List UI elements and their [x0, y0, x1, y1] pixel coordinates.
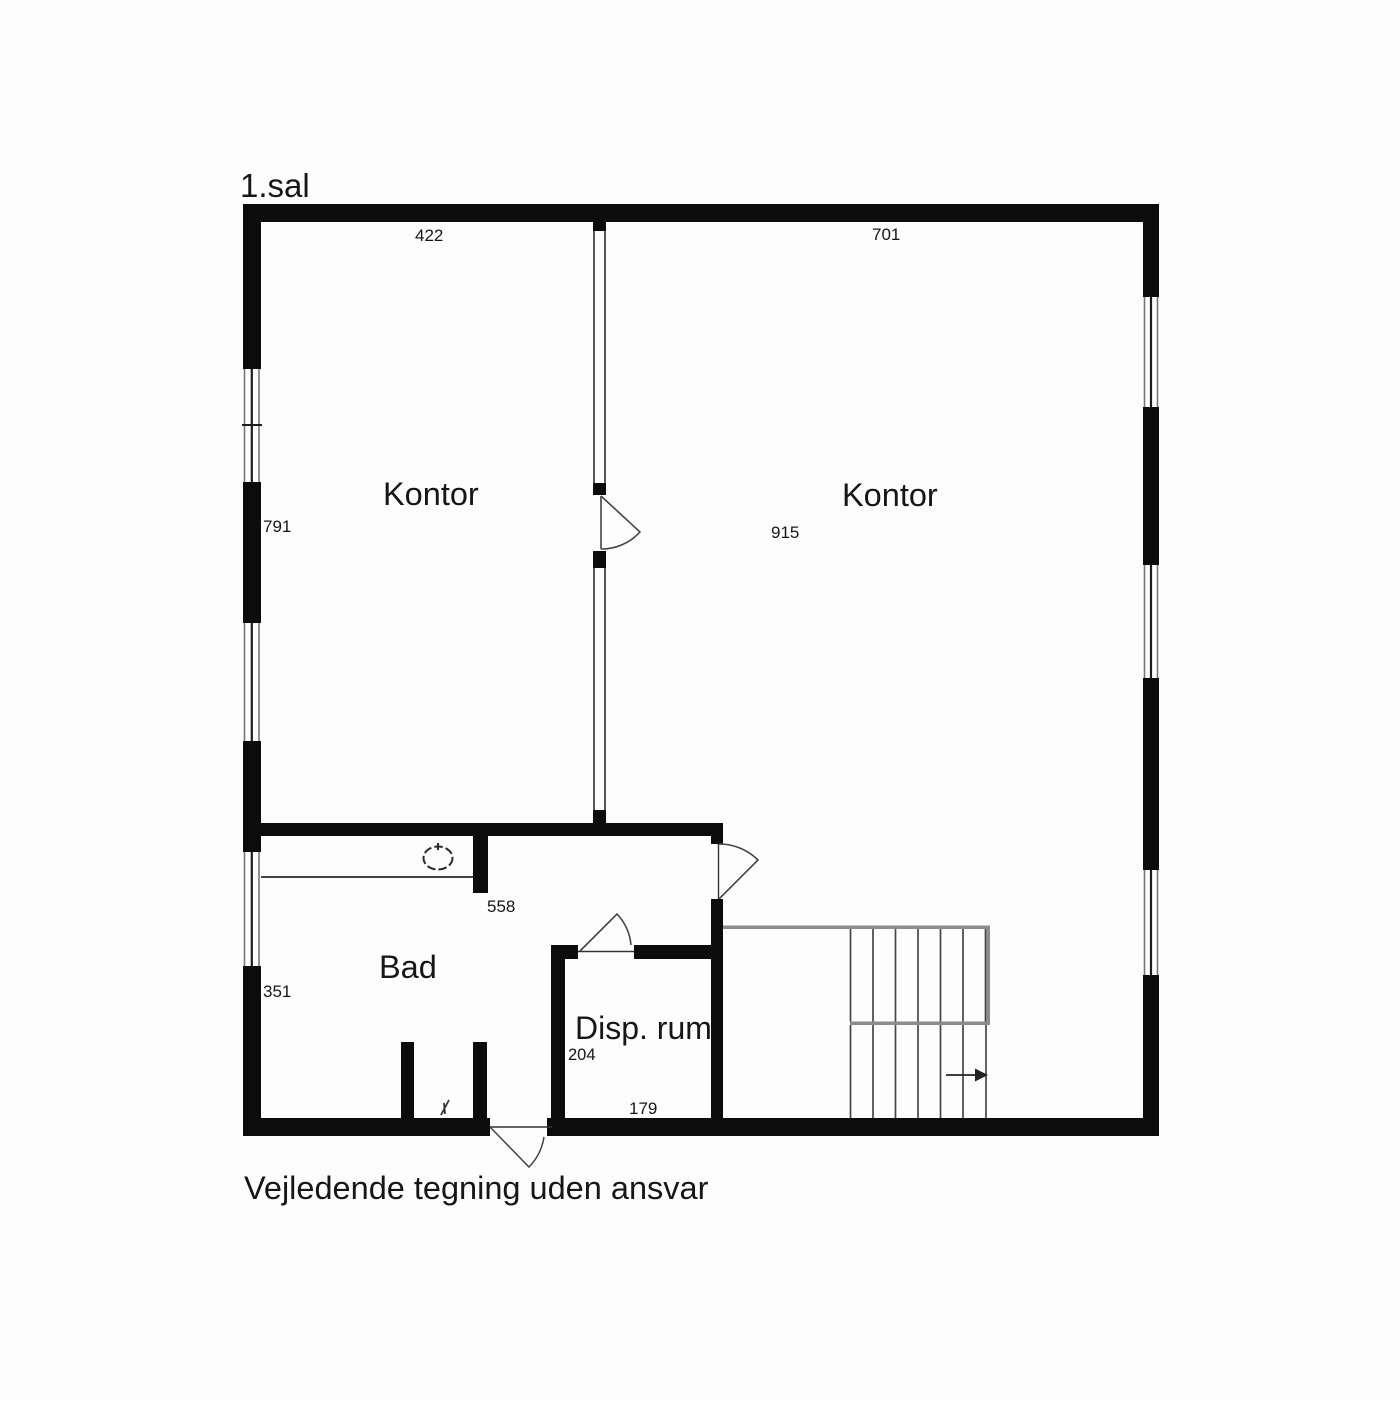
svg-text:701: 701 [872, 225, 900, 244]
svg-text:791: 791 [263, 517, 291, 536]
svg-text:Kontor: Kontor [383, 476, 479, 512]
svg-text:Bad: Bad [379, 949, 437, 985]
svg-text:915: 915 [771, 523, 799, 542]
svg-text:Vejledende tegning uden ansvar: Vejledende tegning uden ansvar [244, 1170, 709, 1206]
svg-text:558: 558 [487, 897, 515, 916]
svg-text:351: 351 [263, 982, 291, 1001]
svg-text:204: 204 [568, 1046, 596, 1064]
svg-text:179: 179 [629, 1099, 657, 1118]
svg-text:Disp. rum: Disp. rum [575, 1010, 712, 1046]
svg-text:1.sal: 1.sal [240, 167, 310, 204]
svg-text:Kontor: Kontor [842, 477, 938, 513]
svg-text:422: 422 [415, 226, 443, 245]
